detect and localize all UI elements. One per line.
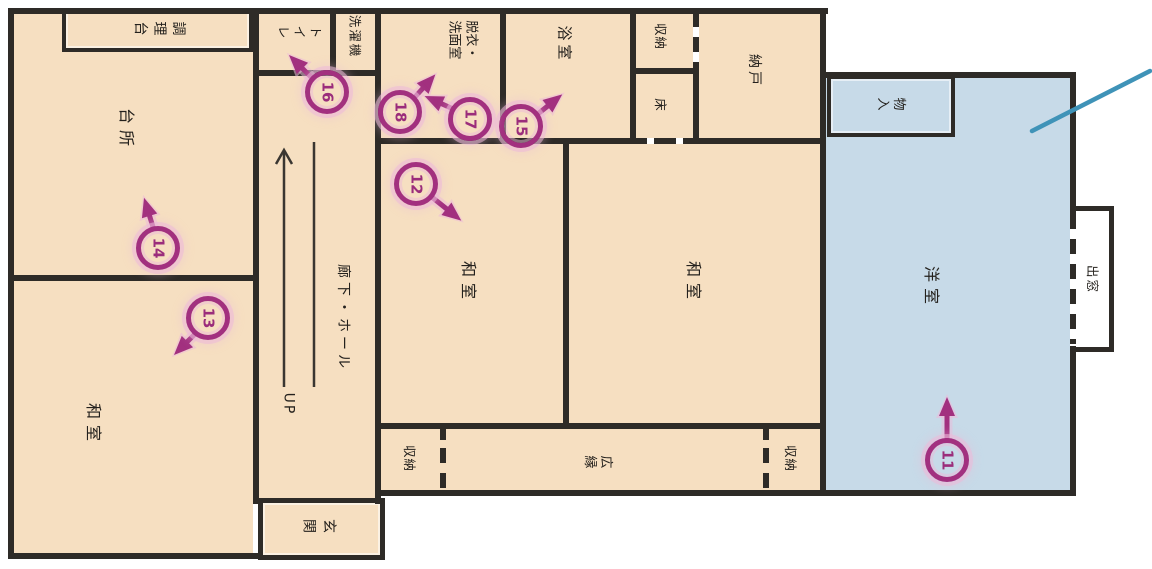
- wall: [683, 138, 826, 144]
- wall: [375, 490, 1076, 496]
- wall-dash: [763, 448, 769, 490]
- wall: [375, 8, 381, 504]
- wall: [8, 8, 14, 559]
- camera-marker-16: 16: [305, 70, 349, 114]
- camera-marker-17: 17: [448, 97, 492, 141]
- wall: [330, 8, 336, 76]
- label-dressing-line2: 洗面室: [446, 20, 461, 59]
- camera-marker-13: 13: [186, 296, 230, 340]
- floor-plan: 調理台 台所 トイレ 洗濯機 脱衣・ 洗面室 浴室 収納 床 納戸 物入 洋室 …: [0, 0, 1152, 569]
- wall: [563, 138, 569, 429]
- camera-marker-12: 12: [394, 162, 438, 206]
- wall-dash: [1070, 214, 1076, 344]
- wall-dash: [654, 138, 676, 144]
- wall-dash: [440, 448, 446, 490]
- camera-marker-15: 15: [499, 104, 543, 148]
- wall: [8, 553, 261, 559]
- wall: [253, 8, 259, 504]
- camera-marker-18: 18: [378, 90, 422, 134]
- room-corridor: [259, 76, 375, 498]
- wall: [630, 8, 636, 144]
- wall: [1070, 72, 1076, 214]
- wall-dash: [693, 12, 699, 58]
- wall: [8, 275, 259, 281]
- wall: [630, 68, 699, 74]
- camera-marker-11: 11: [925, 438, 969, 482]
- room-western: [826, 78, 1070, 490]
- camera-marker-14: 14: [136, 226, 180, 270]
- label-dressing-line1: 脱衣・: [463, 20, 478, 59]
- wall: [693, 62, 699, 144]
- wall: [8, 8, 828, 14]
- wall: [440, 423, 446, 440]
- wall: [820, 72, 1076, 78]
- wall: [1070, 346, 1076, 496]
- wall: [763, 423, 769, 440]
